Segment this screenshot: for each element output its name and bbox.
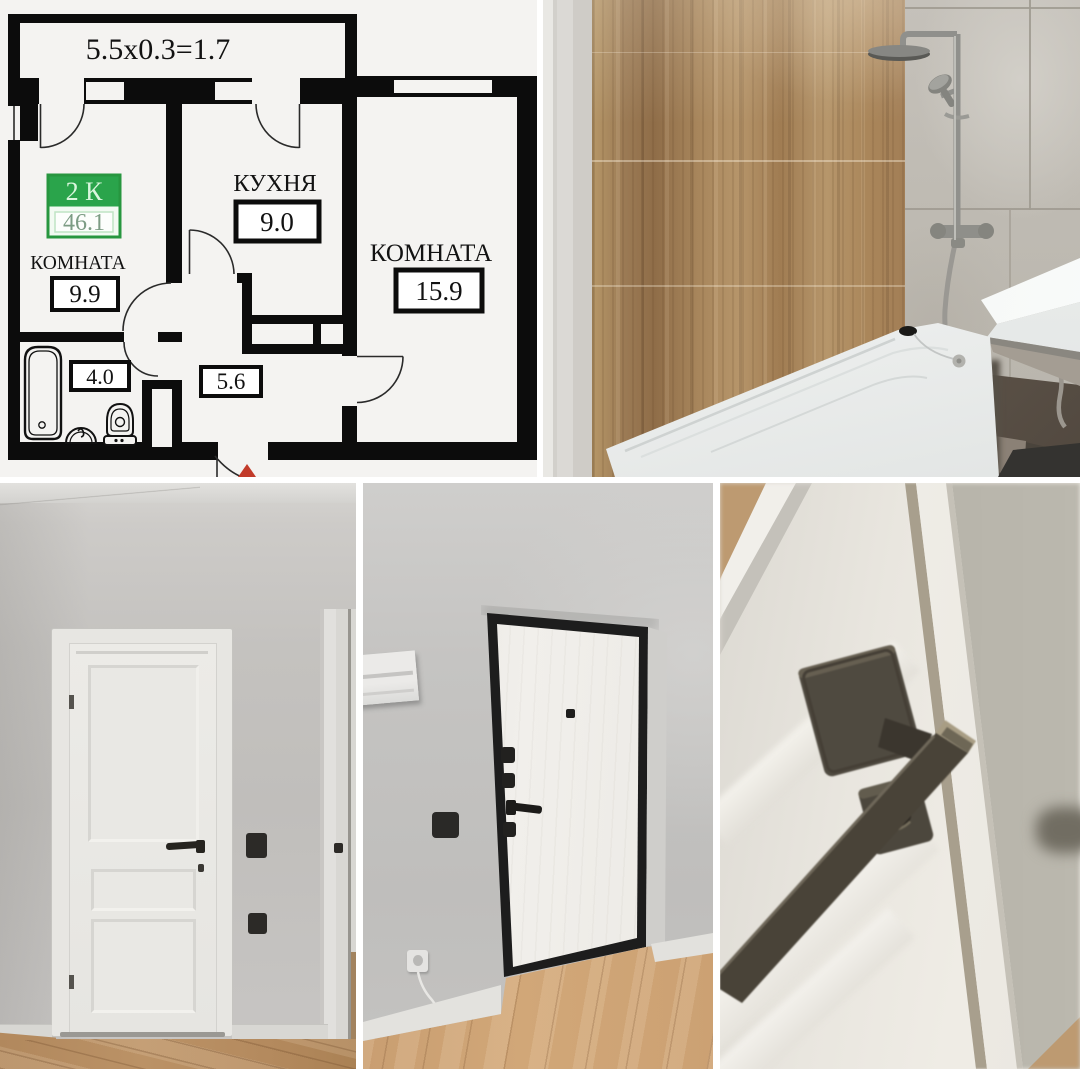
svg-text:КОМНАТА: КОМНАТА: [30, 253, 125, 274]
svg-text:КУХНЯ: КУХНЯ: [233, 171, 316, 197]
svg-text:4.0: 4.0: [86, 364, 114, 389]
svg-text:КОМНАТА: КОМНАТА: [370, 240, 492, 267]
svg-text:9.0: 9.0: [260, 207, 294, 237]
svg-text:46.1: 46.1: [63, 210, 105, 236]
svg-text:2 К: 2 К: [66, 177, 104, 206]
svg-text:5.6: 5.6: [217, 369, 246, 394]
svg-text:9.9: 9.9: [69, 281, 100, 308]
svg-text:5.5x0.3=1.7: 5.5x0.3=1.7: [86, 33, 230, 66]
svg-text:15.9: 15.9: [415, 276, 462, 306]
